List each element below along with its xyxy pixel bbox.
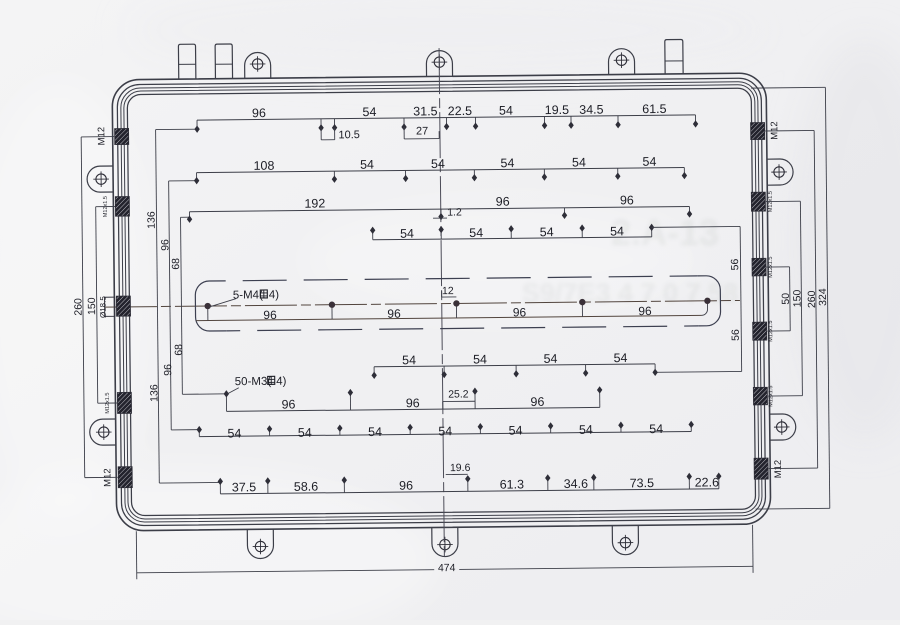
svg-text:1.2: 1.2 bbox=[447, 206, 462, 218]
svg-text:4): 4) bbox=[276, 376, 287, 388]
svg-text:58.6: 58.6 bbox=[294, 480, 319, 494]
svg-text:150: 150 bbox=[86, 297, 98, 315]
svg-text:31.5: 31.5 bbox=[413, 104, 438, 118]
svg-text:260: 260 bbox=[72, 298, 84, 316]
svg-text:54: 54 bbox=[400, 227, 414, 241]
svg-text:96: 96 bbox=[638, 304, 652, 318]
svg-text:136: 136 bbox=[146, 211, 158, 229]
svg-text:96: 96 bbox=[162, 364, 174, 376]
svg-text:54: 54 bbox=[402, 353, 416, 367]
svg-text:54: 54 bbox=[509, 423, 523, 437]
svg-text:S9/7E3 4 7 0 7 58: S9/7E3 4 7 0 7 58 bbox=[522, 278, 738, 308]
svg-text:54: 54 bbox=[227, 426, 241, 440]
svg-text:54: 54 bbox=[362, 105, 376, 119]
svg-text:54: 54 bbox=[360, 158, 374, 172]
svg-text:54: 54 bbox=[572, 155, 586, 169]
svg-text:96: 96 bbox=[399, 479, 413, 493]
svg-text:192: 192 bbox=[304, 196, 325, 210]
svg-text:54: 54 bbox=[431, 157, 445, 171]
svg-text:54: 54 bbox=[368, 425, 382, 439]
svg-text:22.5: 22.5 bbox=[448, 104, 473, 118]
svg-text:54: 54 bbox=[543, 352, 557, 366]
svg-text:96: 96 bbox=[496, 195, 510, 209]
svg-text:37.5: 37.5 bbox=[232, 480, 257, 494]
svg-text:96: 96 bbox=[513, 305, 527, 319]
svg-text:68: 68 bbox=[170, 258, 182, 270]
svg-text:54: 54 bbox=[579, 423, 593, 437]
svg-text:2.A-13: 2.A-13 bbox=[611, 212, 719, 253]
svg-text:M12: M12 bbox=[96, 127, 107, 146]
svg-text:136: 136 bbox=[148, 384, 160, 402]
svg-text:50-M3(: 50-M3( bbox=[235, 376, 272, 388]
svg-text:96: 96 bbox=[159, 239, 171, 251]
svg-text:5-M4(: 5-M4( bbox=[233, 289, 263, 301]
svg-text:54: 54 bbox=[298, 426, 312, 440]
svg-text:73.5: 73.5 bbox=[630, 476, 655, 490]
svg-text:34.6: 34.6 bbox=[564, 477, 589, 491]
svg-text:474: 474 bbox=[438, 562, 456, 574]
svg-text:54: 54 bbox=[499, 104, 513, 118]
svg-text:324: 324 bbox=[817, 288, 829, 306]
svg-text:22.6: 22.6 bbox=[695, 475, 720, 489]
svg-text:Ø18.5: Ø18.5 bbox=[99, 296, 108, 318]
svg-text:25.2: 25.2 bbox=[448, 388, 469, 400]
svg-text:96: 96 bbox=[620, 193, 634, 207]
svg-text:54: 54 bbox=[610, 224, 624, 238]
svg-text:12: 12 bbox=[442, 285, 454, 297]
svg-text:96: 96 bbox=[530, 395, 544, 409]
svg-text:54: 54 bbox=[642, 155, 656, 169]
svg-text:108: 108 bbox=[253, 159, 274, 173]
svg-text:54: 54 bbox=[500, 156, 514, 170]
svg-text:34.5: 34.5 bbox=[579, 103, 604, 117]
svg-text:54: 54 bbox=[469, 226, 483, 240]
svg-text:54: 54 bbox=[438, 424, 452, 438]
svg-text:96: 96 bbox=[387, 307, 401, 321]
svg-text:19.5: 19.5 bbox=[545, 103, 570, 117]
svg-text:54: 54 bbox=[540, 225, 554, 239]
svg-text:96: 96 bbox=[281, 397, 295, 411]
svg-text:96: 96 bbox=[263, 308, 277, 322]
svg-text:150: 150 bbox=[791, 289, 803, 307]
svg-text:61.3: 61.3 bbox=[500, 477, 525, 491]
svg-text:96: 96 bbox=[406, 396, 420, 410]
svg-text:50: 50 bbox=[780, 293, 792, 305]
svg-text:54: 54 bbox=[613, 351, 627, 365]
svg-text:54: 54 bbox=[473, 352, 487, 366]
svg-text:56: 56 bbox=[729, 258, 741, 270]
svg-text:61.5: 61.5 bbox=[642, 102, 667, 116]
svg-text:4): 4) bbox=[269, 289, 280, 301]
svg-text:10.5: 10.5 bbox=[338, 129, 360, 141]
svg-text:96: 96 bbox=[252, 106, 266, 120]
svg-text:56: 56 bbox=[730, 329, 742, 341]
svg-text:M12: M12 bbox=[773, 460, 784, 479]
svg-text:27: 27 bbox=[416, 125, 428, 137]
svg-text:54: 54 bbox=[649, 422, 663, 436]
svg-text:68: 68 bbox=[173, 344, 185, 356]
svg-text:19.6: 19.6 bbox=[450, 462, 471, 474]
